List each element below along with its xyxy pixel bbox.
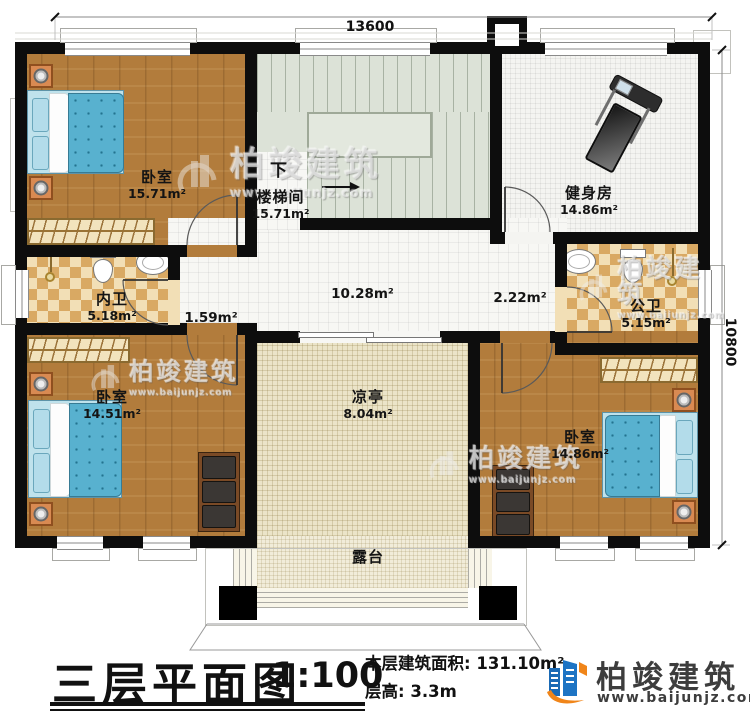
pillow-icon (32, 136, 49, 170)
nightstand-knob-icon (34, 181, 49, 196)
wall (468, 331, 480, 548)
title-underline (50, 702, 365, 706)
wardrobe-icon (600, 357, 698, 383)
shower-head-icon (45, 272, 55, 282)
nightstand-knob-icon (34, 377, 49, 392)
window (560, 536, 608, 550)
pillow-icon (32, 98, 49, 132)
pillow-icon (33, 453, 50, 493)
doorway (168, 280, 180, 325)
chimney-hole (495, 24, 519, 46)
wall (490, 42, 502, 244)
nightstand-icon (29, 502, 53, 526)
window (65, 42, 190, 56)
duvet-icon (69, 403, 122, 497)
window-sill (1, 265, 16, 325)
stair-treads-upper (257, 54, 490, 112)
pillar (219, 586, 257, 620)
wardrobe-icon (27, 218, 155, 245)
bed-icon (602, 412, 698, 498)
floor-area-line: 本层建筑面积: 131.10m² (365, 650, 564, 674)
sofa-cushion (496, 514, 530, 535)
floor-plan-canvas: 柏竣建筑 www.baijunjz.com 柏竣建筑 www.baijunjz.… (0, 0, 750, 722)
wardrobe-icon (27, 337, 130, 363)
sofa-cushion (496, 469, 530, 490)
sofa-cushion (202, 456, 236, 479)
nightstand-knob-icon (677, 505, 692, 520)
pillar (479, 586, 517, 620)
shower-head-icon (667, 276, 677, 286)
doorway (555, 287, 567, 332)
sink-basin (142, 255, 164, 270)
window (640, 536, 688, 550)
wall (245, 331, 257, 548)
window-sill (60, 28, 197, 43)
doorway (187, 323, 237, 335)
chimney (487, 16, 527, 54)
pillow-icon (33, 409, 50, 449)
sofa-icon (492, 465, 534, 539)
sink-icon (562, 249, 596, 274)
nightstand-icon (29, 372, 53, 396)
wall (555, 343, 710, 355)
pavilion-floor (257, 343, 468, 536)
window (545, 42, 667, 56)
toilet-bowl (93, 259, 113, 283)
shower-icon (672, 248, 674, 276)
sliding-door-panel (366, 337, 442, 343)
brand-logo-icon (546, 650, 592, 708)
stair-landing (307, 112, 432, 158)
doorway (500, 331, 550, 343)
bed-icon (28, 400, 122, 498)
toilet-tank (620, 249, 646, 258)
stair-treads-lower (307, 158, 432, 218)
window (143, 536, 190, 550)
window (57, 536, 103, 550)
nightstand-knob-icon (34, 69, 49, 84)
window (15, 270, 29, 318)
sofa-cushion (202, 505, 236, 528)
terrace-apron (190, 624, 541, 650)
nightstand-icon (29, 64, 53, 88)
pillow-icon (676, 420, 693, 455)
floor-height-line: 层高: 3.3m (365, 678, 457, 702)
sliding-door-panel (298, 332, 374, 338)
nightstand-knob-icon (677, 393, 692, 408)
duvet-icon (605, 415, 660, 497)
title-underline-thin (50, 709, 365, 711)
stair-treads-right (432, 112, 490, 218)
wall (245, 42, 257, 257)
nightstand-icon (672, 388, 696, 412)
window-sill (295, 28, 437, 43)
nightstand-icon (29, 176, 53, 200)
brand-website: www.baijunjz.com (597, 690, 750, 706)
wall (300, 218, 490, 230)
wall (15, 536, 257, 548)
toilet-icon (620, 249, 646, 287)
floor-area-label: 本层建筑面积: (365, 654, 471, 673)
sofa-cushion (202, 481, 236, 504)
window-sill (710, 265, 725, 325)
floor-height-value: 3.3m (410, 682, 456, 701)
window-sill (540, 28, 675, 43)
sofa-icon (198, 452, 240, 532)
sink-basin (568, 254, 590, 269)
nightstand-knob-icon (34, 507, 49, 522)
duvet-icon (68, 93, 124, 173)
doorway (505, 232, 553, 244)
toilet-bowl (623, 259, 643, 283)
bed-icon (27, 90, 124, 174)
nightstand-icon (672, 500, 696, 524)
doorway (187, 245, 237, 257)
window (698, 270, 712, 318)
floor-height-label: 层高: (365, 682, 405, 701)
window (300, 42, 430, 56)
pillow-icon (676, 459, 693, 494)
sofa-cushion (496, 492, 530, 513)
